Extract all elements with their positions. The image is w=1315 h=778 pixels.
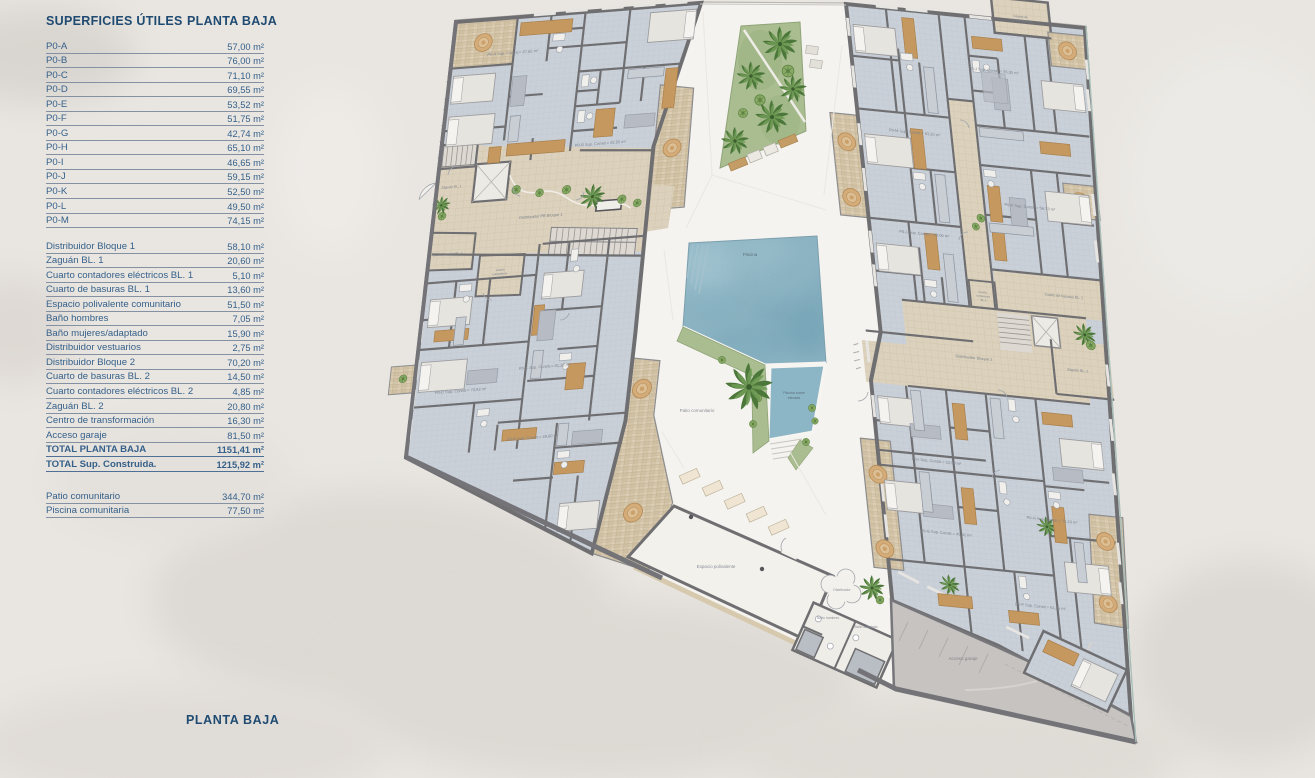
svg-text:BL.2: BL.2 [981,298,988,303]
svg-text:elevada: elevada [788,396,801,400]
svg-text:Acceso garaje: Acceso garaje [948,656,978,661]
svg-text:BL. 1: BL. 1 [496,275,504,280]
svg-text:Baño adaptado: Baño adaptado [854,625,877,629]
svg-text:Baño hombres: Baño hombres [817,616,839,620]
svg-text:Espacio polivalente: Espacio polivalente [697,564,736,569]
svg-text:Piscina sobre: Piscina sobre [783,391,805,395]
svg-text:Distribuidor: Distribuidor [833,588,851,592]
svg-text:Piscina: Piscina [743,252,758,257]
svg-text:Patio comunitario: Patio comunitario [680,408,715,413]
